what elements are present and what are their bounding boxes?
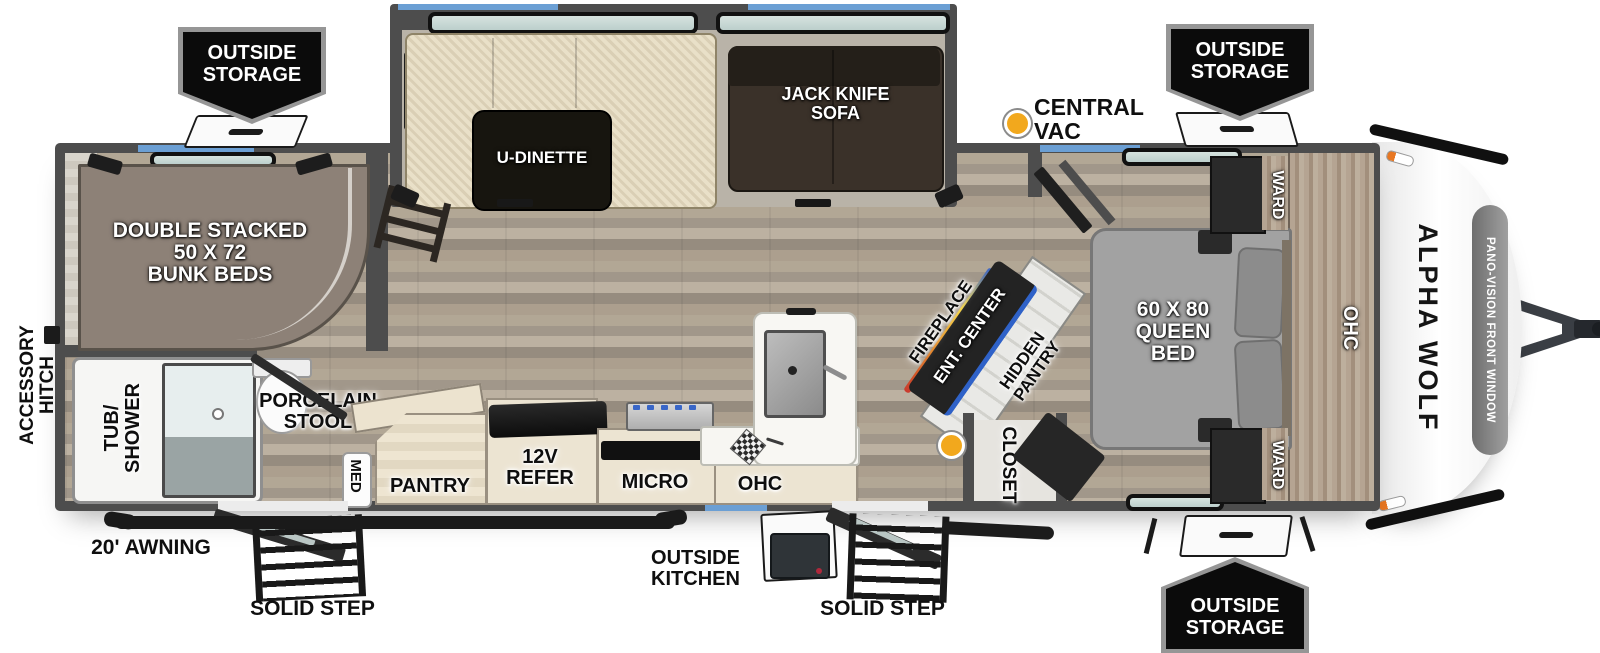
grab-handle-bar [942,521,1055,540]
slideout-accent-right [748,4,950,10]
refer-label: 12V REFER [486,444,594,492]
pano-vision-front-window: PANO-VISION FRONT WINDOW [1472,205,1508,455]
shower-door-knob [212,408,224,420]
slide-handle-right [795,199,831,207]
med-cabinet-label: MED [345,443,365,509]
brand-name: ALPHA WOLF [1412,178,1444,478]
central-vac-label: CENTRAL VAC [1034,106,1194,134]
sink-towel-bar [786,308,816,315]
outside-kitchen-label: OUTSIDE KITCHEN [638,544,753,594]
central-vac-dot [1004,110,1031,137]
sink-drain [788,366,797,375]
front-ohc-label: OHC [1338,268,1362,388]
flap-tick-right [1300,516,1316,552]
micro-label: MICRO [597,470,713,494]
main-solid-step [847,513,950,602]
wardrobe-bottom [1210,428,1266,504]
bunk-label: DOUBLE STACKED 50 X 72 BUNK BEDS [110,218,310,288]
outside-storage-badge-bottom-right: OUTSIDE STORAGE [1161,557,1309,653]
range-knob-4 [675,405,682,410]
awning-end-right [654,509,688,529]
awning-label: 20' AWNING [86,535,216,561]
microwave-band [601,441,709,460]
outside-kitchen-knob [816,568,822,574]
closet-label: CLOSET [997,419,1019,511]
accessory-hitch-label: ACCESSORY HITCH [15,325,61,445]
closet-left-wall [963,413,974,501]
range-knob-1 [633,405,640,410]
range-knob-3 [661,405,668,410]
slideout-accent-left [398,4,558,10]
wardrobe-top-label: WARD [1268,154,1286,236]
wardrobe-top [1210,156,1266,234]
slide-handle-left [497,199,533,207]
outside-storage-badge-label: OUTSIDE STORAGE [183,32,321,119]
pillow-top [1234,247,1287,339]
tub-shower-label: TUB/ SHOWER [100,363,146,493]
solid-step-label-rear: SOLID STEP [245,596,380,622]
pano-vision-label: PANO-VISION FRONT WINDOW [1484,237,1496,423]
headboard [1282,240,1291,436]
outside-storage-badge-top-left: OUTSIDE STORAGE [178,27,326,124]
awning-end-left [103,511,137,531]
window-accent-bottom-kitchen [705,504,767,511]
queen-bed-label: 60 X 80 QUEEN BED [1118,296,1228,368]
main-door-threshold [832,501,928,511]
pantry-label: PANTRY [372,474,488,498]
flap-tick-left [1144,518,1158,554]
floorplan-canvas: ALPHA WOLF PANO-VISION FRONT WINDOW OHC … [0,0,1600,653]
kitchen-ohc-label: OHC [700,472,820,496]
central-vac-inlet-dot [938,432,965,459]
wardrobe-bottom-label: WARD [1268,424,1286,506]
shower-glass-door [162,363,256,498]
slideout-window-right [716,12,950,34]
rear-door-threshold [218,501,348,511]
range-knob-5 [689,405,696,410]
storage-flap-bottom-right [1179,515,1293,557]
refer-top-panel [488,401,607,438]
awning-roller [115,516,675,529]
range-knob-2 [647,405,654,410]
sofa-label: JACK KNIFE SOFA [763,80,908,128]
pillow-bottom [1234,339,1287,431]
dinette-label: U-DINETTE [472,138,612,178]
slideout-window-left [428,12,698,34]
dinette-seat-line-1 [492,38,494,108]
outside-storage-badge-label: OUTSIDE STORAGE [1166,562,1304,649]
solid-step-label-main: SOLID STEP [815,596,950,622]
dinette-seat-line-2 [575,38,577,108]
